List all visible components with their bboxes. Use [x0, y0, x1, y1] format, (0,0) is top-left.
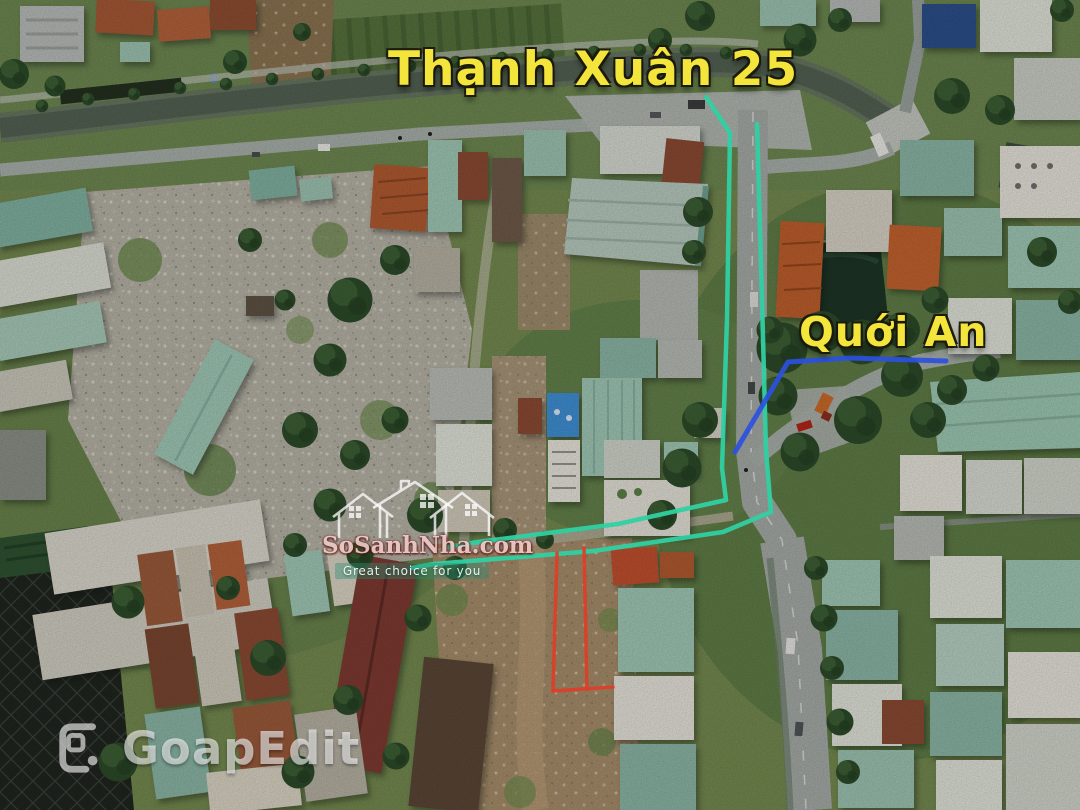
plot-outline-left: [553, 553, 557, 691]
street-label-quoi-an: Quới An: [799, 312, 987, 353]
goapedit-watermark: GoapEdit: [54, 720, 360, 776]
street-label-thanh-xuan-25: Thạnh Xuân 25: [388, 46, 798, 93]
plot-outline-right: [584, 548, 587, 689]
sosanhnha-watermark: SoSanhNha.com Great choice for you: [322, 476, 502, 579]
goapedit-logo-icon: [54, 720, 110, 776]
annotation-overlay: [0, 0, 1080, 810]
goapedit-label: GoapEdit: [122, 722, 360, 775]
plot-outline-bottom: [553, 687, 613, 691]
watermark-tagline: Great choice for you: [335, 563, 489, 579]
watermark-brand: SoSanhNha.com: [322, 532, 502, 559]
aerial-photo-scene: Thạnh Xuân 25 Quới An SoSanhNha.com Grea…: [0, 0, 1080, 810]
